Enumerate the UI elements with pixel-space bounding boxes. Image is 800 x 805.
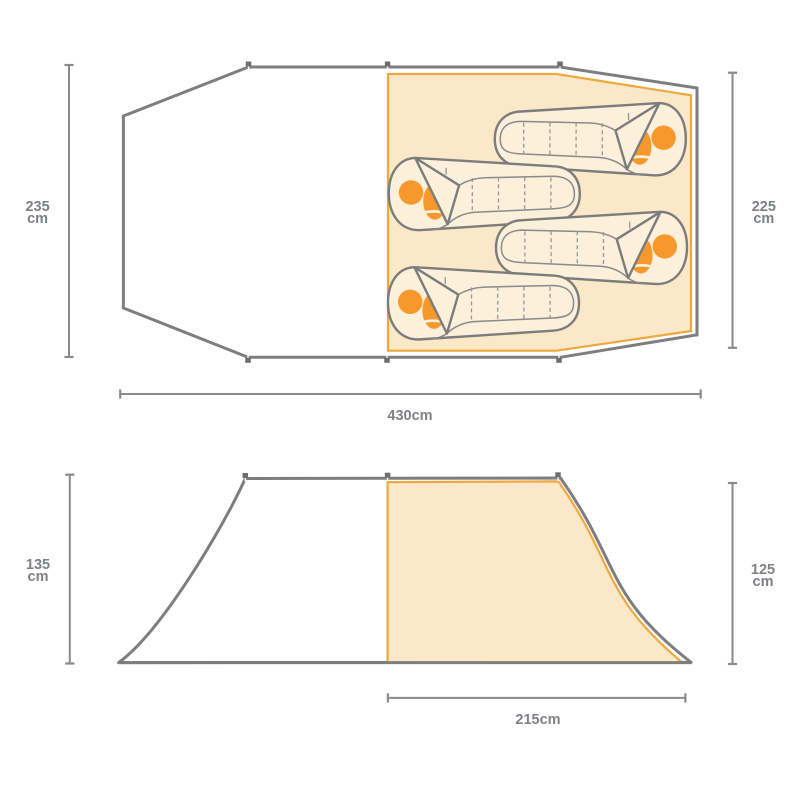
svg-text:215cm: 215cm — [515, 712, 560, 728]
svg-text:cm: cm — [27, 211, 48, 227]
svg-text:cm: cm — [753, 574, 774, 590]
svg-text:cm: cm — [28, 569, 49, 585]
svg-text:430cm: 430cm — [387, 408, 432, 424]
svg-text:cm: cm — [753, 211, 774, 227]
